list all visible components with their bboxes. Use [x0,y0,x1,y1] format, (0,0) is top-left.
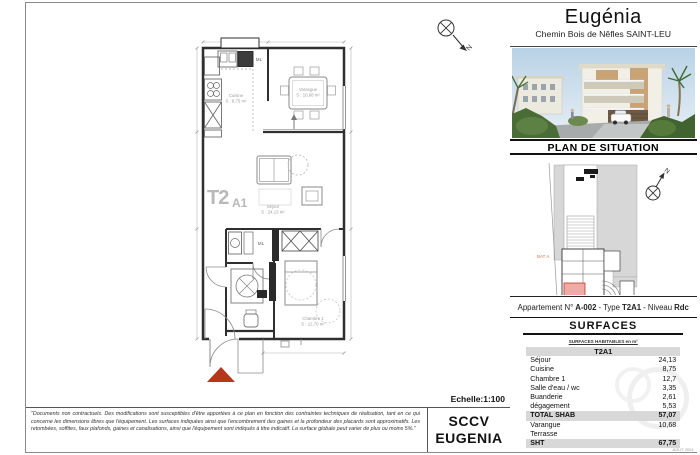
situation-map: BAT A N [510,155,697,296]
surfaces-title: SURFACES [510,320,697,332]
title-block: "Documents non contractuels. Des modific… [26,407,510,452]
situation-section-title: PLAN DE SITUATION [510,139,697,155]
bat-a-label: BAT A [537,254,549,259]
svg-text:T2: T2 [207,187,229,209]
surfaces-table: T2A1 Séjour24,13 Cuisine8,75 Chambre 112… [526,347,680,448]
floor-plan-panel: N T2 A1 Cuisine S : 8,75 m² Varangue S :… [26,3,511,452]
svg-text:S : 24,13 m²: S : 24,13 m² [261,210,285,215]
table-row-total-shab: TOTAL SHAB57,07 [526,411,680,420]
svg-text:A1: A1 [232,196,248,210]
svg-text:Varangue: Varangue [299,87,318,92]
sheet-border: N T2 A1 Cuisine S : 8,75 m² Varangue S :… [25,2,697,453]
surfaces-title-underline [523,333,683,335]
company-name-line1: SCCV [449,413,490,431]
table-row: dégagement5,53 [526,402,680,411]
surfaces-section-title-bar: SURFACES [510,317,697,336]
table-row-sht: SHT67,75 [526,439,680,448]
project-address: Chemin Bois de Nêfles SAINT-LEU [510,29,697,39]
entrance-arrow [207,367,235,382]
table-row: Cuisine8,75 [526,365,680,374]
table-row: Terrasse [526,430,680,439]
north-compass-icon: N [438,20,473,51]
table-row: Séjour24,13 [526,356,680,365]
project-photo [510,47,697,139]
laundry-fittings [229,232,254,254]
living-furniture [257,155,322,205]
svg-text:S : 8,75 m²: S : 8,75 m² [225,99,247,104]
svg-text:Cuisine: Cuisine [229,93,244,98]
date-note: AOUT 2024 [672,447,693,452]
unit-type-label: T2 A1 [207,187,248,210]
apt-sep1: - Type [598,303,620,312]
plan-sheet-page: N T2 A1 Cuisine S : 8,75 m² Varangue S :… [0,0,700,455]
highlighted-unit [564,283,585,295]
closet [282,231,318,251]
bathroom-fittings [231,269,267,327]
table-row: Buanderie2,61 [526,393,680,402]
situation-drawing: BAT A N [510,155,696,295]
scale-label: Echelle:1:100 [451,394,505,404]
floor-plan-drawing: N T2 A1 Cuisine S : 8,75 m² Varangue S :… [26,3,508,405]
surfaces-note: SURFACES HABITABLES en m² [510,339,697,344]
dining-table [281,67,336,129]
table-row: Varangue10,68 [526,421,680,430]
render-image [512,48,695,138]
disclaimer-text: "Documents non contractuels. Des modific… [31,411,420,434]
project-header: Eugénia Chemin Bois de Nêfles SAINT-LEU [510,3,697,47]
apt-type: T2A1 [622,303,641,312]
svg-text:S : 12,70 m²: S : 12,70 m² [301,322,325,327]
entry-porch [238,339,301,373]
svg-text:S : 10,68 m²: S : 10,68 m² [296,93,320,98]
bed [285,261,340,323]
table-row: Chambre 112,7 [526,375,680,384]
stairs-hatch [567,216,594,252]
apartment-info-line: Appartement N° A-002 - Type T2A1 - Nivea… [510,296,697,317]
svg-text:Séjour: Séjour [267,204,280,209]
situation-north-icon: N [646,167,671,200]
disclaimer-cell: "Documents non contractuels. Des modific… [26,408,427,452]
surfaces-column-header: T2A1 [526,347,680,356]
company-name-line2: EUGENIA [435,430,502,448]
info-column: Eugénia Chemin Bois de Nêfles SAINT-LEU [510,3,697,452]
apt-level: Rdc [674,303,689,312]
apt-prefix: Appartement N° [518,303,574,312]
table-row: Salle d'eau / wc3,35 [526,384,680,393]
ml-kitchen-label: ML [256,57,263,62]
apt-sep2: - Niveau [643,303,672,312]
apt-number: A-002 [575,303,596,312]
company-cell: SCCV EUGENIA [427,408,510,452]
project-title: Eugénia [510,7,697,28]
svg-text:Chambre 1: Chambre 1 [302,316,324,321]
surfaces-table-area: SURFACES HABITABLES en m² T2A1 Séjour24,… [510,336,697,453]
ml-laundry-label: ML [258,241,265,246]
